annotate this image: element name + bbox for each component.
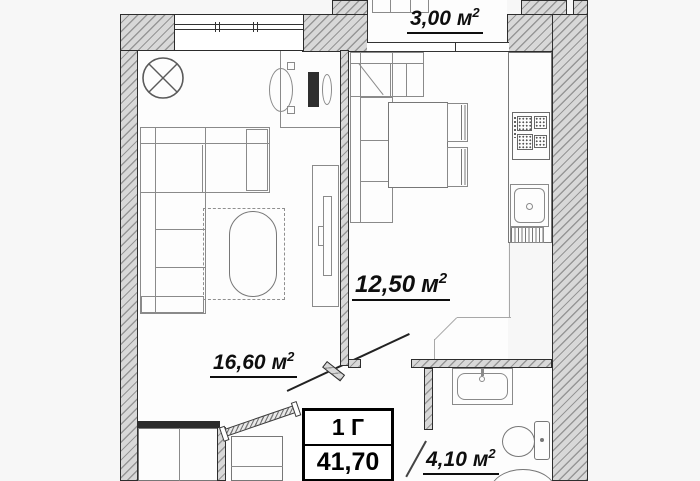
kitchen-area-label: 12,50м2: [352, 272, 450, 301]
sofa-armrest: [246, 129, 268, 191]
area-unit: м: [272, 351, 288, 374]
wall-top-right-block: [507, 14, 554, 52]
sofa-left-section: [140, 127, 206, 314]
bathroom-area-label: 4,10м2: [423, 447, 499, 475]
wall-top-protrusion: [521, 0, 567, 15]
sofa-back-line: [155, 127, 156, 314]
wall-room-divider: [340, 50, 349, 366]
floor-plan-canvas: 3,00м2 12,50м2 16,60м2 4,10м2 1 Г 41,70: [0, 0, 700, 481]
apartment-type-label: 1 Г: [305, 411, 391, 444]
zone-boundary-line: [509, 243, 510, 318]
stove-burner: [534, 135, 547, 148]
hall-cabinet-shelf-line: [231, 466, 283, 467]
tv: [318, 226, 324, 246]
balcony-window-jamb: [455, 43, 456, 51]
bench-seat-divider: [360, 97, 393, 98]
area-exponent: 2: [287, 349, 294, 364]
sofa-cushion-divider: [156, 229, 205, 230]
area-unit: м: [473, 448, 489, 471]
window: [174, 14, 304, 51]
window-mullion: [253, 22, 258, 32]
chair-back-hatch: [461, 105, 466, 140]
wall-window-pier: [302, 14, 368, 52]
toilet-icon: [502, 426, 535, 457]
hall-cabinet: [231, 436, 283, 481]
area-unit: м: [457, 7, 473, 30]
bench-seat-divider: [390, 63, 391, 97]
living-room-area-label: 16,60м2: [210, 350, 297, 378]
area-exponent: 2: [472, 5, 479, 20]
bench-back-line: [360, 52, 361, 223]
area-value: 16,60: [213, 351, 266, 374]
wall-right: [552, 14, 588, 481]
zone-boundary-line: [434, 339, 435, 361]
wall-top-left: [120, 14, 176, 51]
bench-seat-divider: [406, 63, 407, 97]
window-mullion: [215, 22, 220, 32]
wall-bathroom-top: [411, 359, 552, 368]
toilet-tank-button: [540, 438, 544, 442]
area-unit: м: [421, 271, 439, 298]
wall-bathroom-left: [424, 368, 433, 430]
stove-burner: [534, 116, 547, 129]
desk-chair-armrest: [287, 106, 295, 114]
sink-drainer: [510, 227, 544, 243]
wall-balcony-side: [332, 0, 368, 15]
balcony-area-label: 3,00м2: [407, 6, 483, 34]
balcony-window: [367, 42, 509, 52]
area-exponent: 2: [488, 446, 495, 461]
area-value: 12,50: [355, 271, 415, 298]
bench-back-line: [350, 63, 424, 64]
computer-monitor: [308, 72, 319, 107]
zone-boundary-line: [457, 317, 511, 318]
chair-back-hatch: [461, 149, 466, 185]
wall-living-bottom: [137, 421, 220, 428]
sofa-cushion-divider: [156, 267, 205, 268]
sofa-armrest: [141, 296, 204, 313]
area-exponent: 2: [439, 271, 447, 287]
area-value: 4,10: [426, 448, 467, 471]
stove-knobs: [513, 116, 517, 138]
coffee-table: [229, 211, 277, 297]
wall-divider-stub: [348, 359, 361, 368]
window-glazing-line: [175, 24, 303, 30]
desk-speaker: [322, 74, 332, 105]
washbasin-faucet: [481, 369, 484, 376]
wardrobe-divider: [179, 428, 180, 481]
area-value: 3,00: [410, 7, 451, 30]
stove-burner: [517, 134, 533, 150]
stove-burner: [517, 116, 532, 131]
dining-table: [388, 102, 448, 188]
apartment-total-area: 41,70: [305, 444, 391, 479]
wall-left: [120, 50, 138, 481]
apartment-info-box: 1 Г 41,70: [302, 408, 394, 481]
wall-top-protrusion: [573, 0, 588, 15]
sofa-cushion-divider: [202, 145, 203, 192]
washbasin-faucet: [479, 376, 485, 382]
sink-drain: [526, 203, 533, 210]
balcony-furniture-divider: [390, 0, 391, 13]
tv: [323, 196, 332, 276]
desk-chair-armrest: [287, 62, 295, 70]
ceiling-light-icon: [141, 56, 185, 100]
